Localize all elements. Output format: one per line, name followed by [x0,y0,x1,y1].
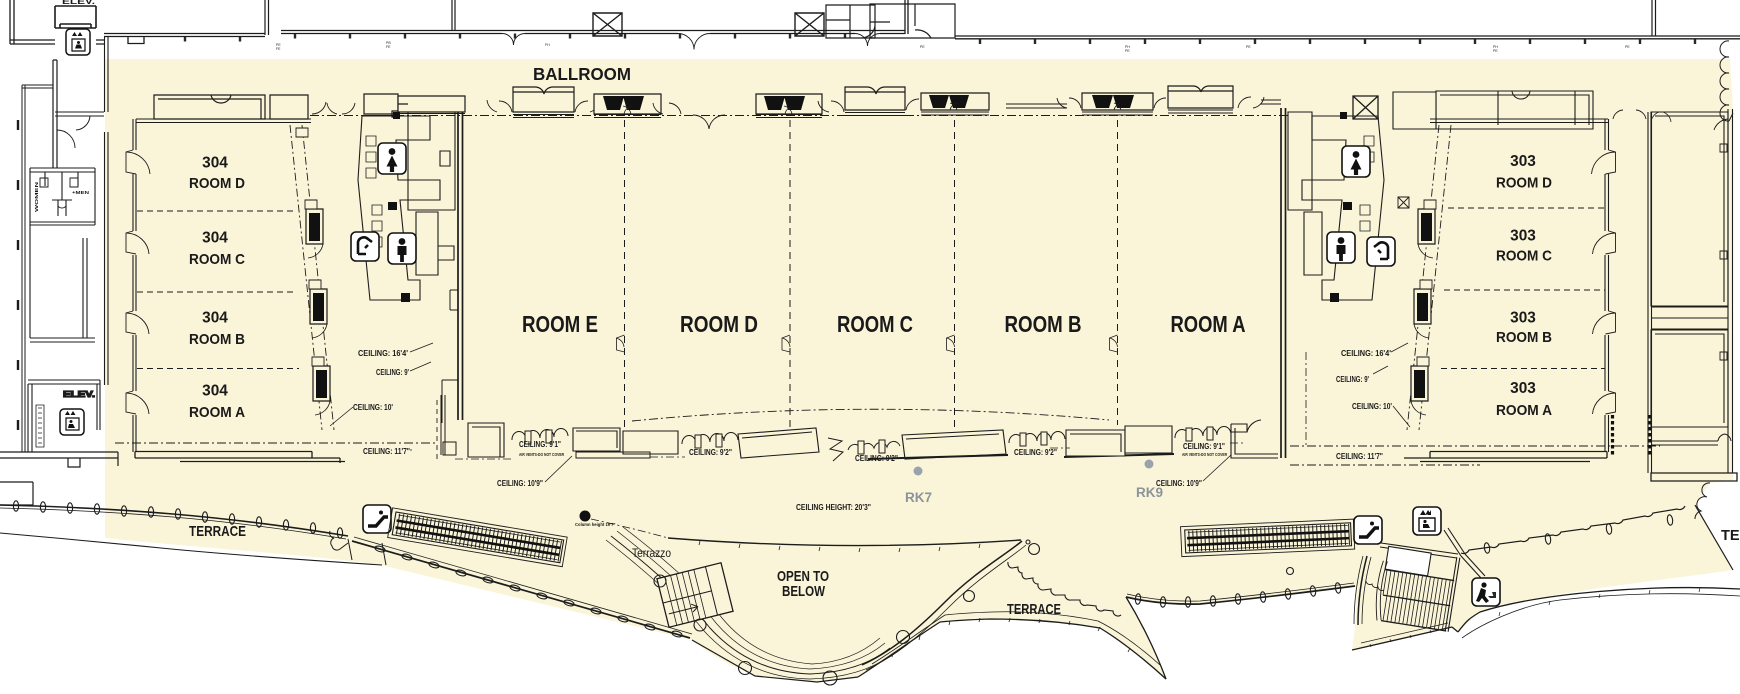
svg-text:CEILING: 9'2": CEILING: 9'2" [689,447,732,457]
svg-text:CEILING HEIGHT: 20'3": CEILING HEIGHT: 20'3" [796,502,871,512]
svg-text:ROOM C: ROOM C [837,311,913,337]
svg-text:FE: FE [276,47,281,51]
svg-text:BALLROOM: BALLROOM [533,64,631,84]
svg-text:CEILING: 10': CEILING: 10' [1352,401,1392,411]
svg-text:ROOM B: ROOM B [189,332,245,348]
svg-text:AIR VENTS-DO NOT COVER: AIR VENTS-DO NOT COVER [519,452,564,457]
svg-text:CEILING: 16'4': CEILING: 16'4' [358,348,408,358]
svg-text:ROOM D: ROOM D [1496,176,1552,192]
svg-text:CEILING: 10'9": CEILING: 10'9" [497,478,543,488]
svg-text:ROOM D: ROOM D [189,176,245,192]
svg-text:CEILING: 11'7": CEILING: 11'7" [1336,451,1383,461]
svg-text:TERRACE: TERRACE [189,524,246,540]
svg-text:PE: PE [920,45,925,49]
svg-text:ROOM A: ROOM A [1496,403,1552,419]
svg-text:304: 304 [202,383,228,400]
svg-text:CEILING: 10': CEILING: 10' [353,402,393,412]
svg-text:RK7: RK7 [905,490,932,505]
svg-text:303: 303 [1510,153,1536,170]
svg-text:CEILING: 9': CEILING: 9' [1336,374,1369,384]
svg-text:304: 304 [202,230,228,247]
svg-text:ROOM A: ROOM A [189,405,245,421]
svg-text:303: 303 [1510,310,1536,327]
svg-text:CEILING: 9'1": CEILING: 9'1" [519,439,561,449]
svg-text:ELEV.: ELEV. [62,0,95,6]
svg-text:TERRACE: TERRACE [1007,602,1061,618]
svg-text:ROOM B: ROOM B [1005,311,1082,337]
svg-text:ROOM A: ROOM A [1171,311,1246,337]
svg-text:ROOM D: ROOM D [680,311,758,337]
svg-text:CEILING: 9'1": CEILING: 9'1" [1183,441,1225,451]
svg-text:CEILING: 9'2": CEILING: 9'2" [1014,447,1057,457]
svg-text:RK9: RK9 [1136,485,1163,500]
svg-text:ROOM C: ROOM C [1496,249,1552,265]
svg-text:ROOM B: ROOM B [1496,330,1552,346]
svg-text:303: 303 [1510,228,1536,245]
svg-text:OPEN TO: OPEN TO [777,569,829,585]
svg-text:ROOM E: ROOM E [522,311,598,337]
svg-text:CEILING: 16'4': CEILING: 16'4' [1341,348,1391,358]
svg-text:303: 303 [1510,380,1536,397]
svg-text:ELEV.: ELEV. [63,389,95,399]
svg-text:304: 304 [202,310,228,327]
svg-text:PE: PE [1625,45,1630,49]
svg-text:CEILING: 11'7": CEILING: 11'7" [363,446,410,456]
svg-text:PE: PE [1246,45,1251,49]
svg-text:BELOW: BELOW [782,584,825,600]
svg-text:TERRACE: TERRACE [1721,528,1740,544]
svg-text:Column height 19'7": Column height 19'7" [575,522,615,527]
svg-text:CEILING: 9'2": CEILING: 9'2" [855,453,898,463]
svg-text:304: 304 [202,155,228,172]
svg-text:PE: PE [1493,49,1498,53]
svg-text:+MEN: +MEN [72,190,89,195]
svg-text:WOMEN: WOMEN [34,182,39,212]
svg-text:PE: PE [1125,49,1130,53]
svg-text:FE: FE [386,45,391,49]
svg-text:AIR VENTS-DO NOT COVER: AIR VENTS-DO NOT COVER [1182,452,1227,457]
svg-text:CEILING: 9': CEILING: 9' [376,367,409,377]
svg-text:ROOM C: ROOM C [189,252,245,268]
svg-text:FH: FH [545,43,550,47]
